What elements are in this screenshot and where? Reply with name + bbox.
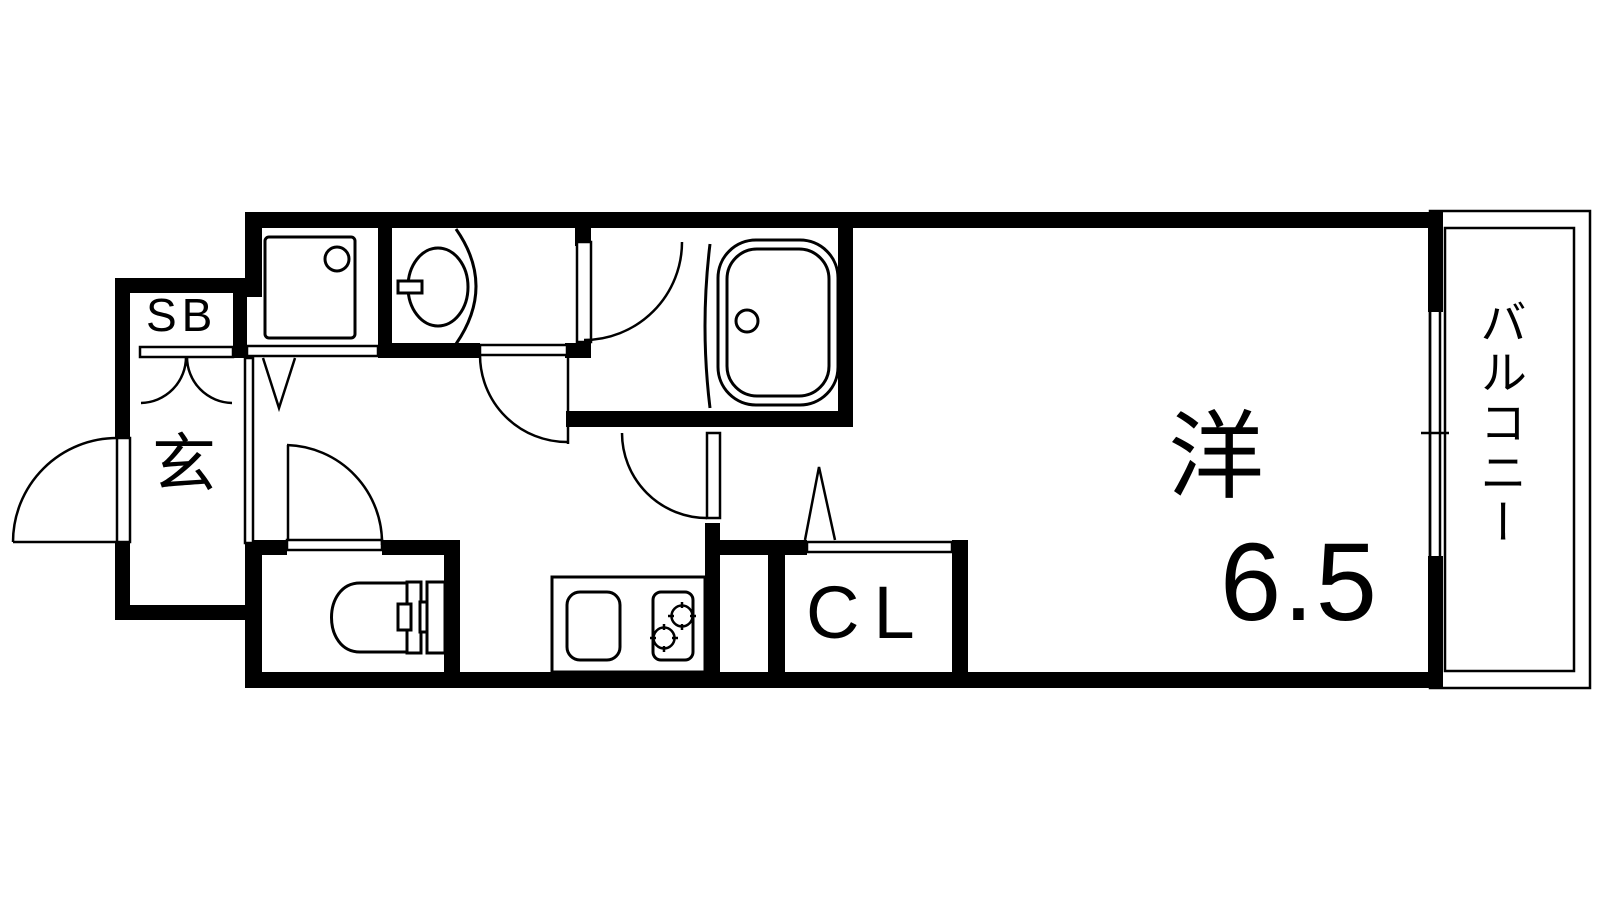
room-door-leaf (707, 433, 720, 518)
closet-label: CL (806, 576, 929, 650)
shoebox-door-arc-right (187, 357, 232, 403)
wall-bottom (245, 672, 1443, 688)
wall-washer-right (378, 228, 392, 346)
washer-folding-door-marker (263, 358, 295, 408)
closet-folding-door-marker (805, 467, 835, 540)
washroom-door-track (480, 345, 567, 355)
western-room-size-label: 6.5 (1220, 528, 1379, 638)
floor-plan-canvas: SB 玄 CL 洋 6.5 バルコニー (0, 0, 1600, 900)
shoe-box-label: SB (146, 292, 217, 338)
shoebox-door-arc-left (141, 357, 186, 403)
toilet-door-swing-arc (287, 445, 382, 545)
wall-closet-left (768, 555, 785, 672)
bathtub-apron-edge (705, 244, 710, 408)
wall-entrance-annex-left-upper (115, 278, 130, 438)
wall-bath-right (838, 228, 853, 427)
western-room-label: 洋 (1168, 410, 1264, 506)
toilet-tank (427, 582, 445, 653)
front-door-jamb (117, 438, 130, 542)
bathtub-drain-icon (736, 310, 758, 332)
washing-machine-drain-icon (325, 247, 349, 271)
stove-burner-icon (654, 628, 675, 649)
bathroom-door-leaf (577, 242, 591, 342)
front-door-swing-arc (13, 438, 117, 542)
entrance-step-edge (245, 358, 253, 543)
floor-plan-drawing (0, 0, 1600, 900)
balcony-label: バルコニー (1476, 298, 1523, 548)
wall-top (245, 212, 1443, 228)
wall-entrance-annex-bottom (115, 605, 262, 620)
washroom-door-swing-arc (480, 355, 567, 442)
closet-door-track (807, 542, 952, 552)
wall-bath-bottom (566, 411, 853, 427)
stove-burner-icon (672, 606, 693, 627)
kitchen-sink-icon (567, 592, 620, 660)
wall-right-lower-stub (1428, 556, 1443, 688)
shoebox-door-track (140, 347, 233, 357)
toilet-flush-notch (398, 604, 411, 630)
wall-shoebox-right (233, 290, 247, 358)
wall-washroom-bottom-stub (565, 343, 591, 358)
wall-closet-right (952, 540, 968, 672)
toilet-door-track (287, 540, 382, 550)
bathroom-door-swing-arc (584, 242, 682, 340)
washbasin-faucet-icon (398, 281, 422, 293)
room-door-swing-arc (622, 433, 707, 518)
entrance-label: 玄 (152, 432, 216, 496)
wall-washroom-bottom (378, 343, 480, 358)
wall-closet-top-left (705, 540, 807, 555)
washer-closet-door-track (247, 346, 378, 356)
wall-right-upper-stub (1428, 212, 1443, 312)
